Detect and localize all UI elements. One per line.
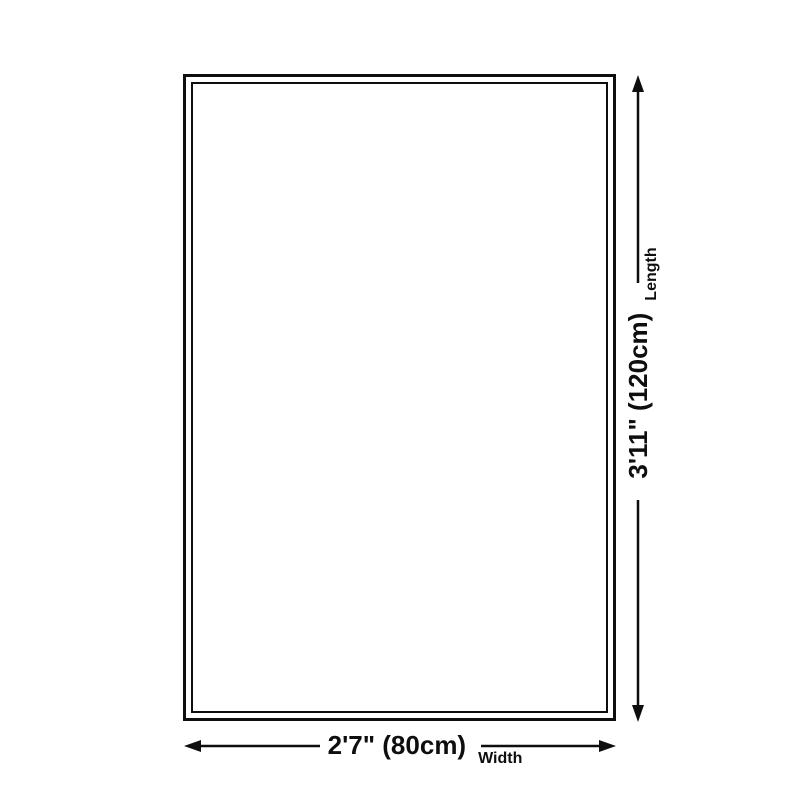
width-value: 2'7" (80cm) xyxy=(328,730,466,760)
length-name: Length xyxy=(644,247,660,300)
width-arrowhead-right-icon xyxy=(599,740,616,752)
product-outline-inner xyxy=(191,82,608,713)
length-arrowhead-top-icon xyxy=(632,75,644,92)
product-size-diagram: 3'11" (120cm)Length 2'7" (80cm)Width xyxy=(0,0,800,800)
length-arrowhead-bottom-icon xyxy=(632,705,644,722)
product-outline xyxy=(183,74,616,721)
width-dimension-label: 2'7" (80cm)Width xyxy=(328,732,523,758)
length-value: 3'11" (120cm) xyxy=(623,313,653,479)
width-arrowhead-left-icon xyxy=(184,740,201,752)
length-dimension-label: 3'11" (120cm)Length xyxy=(625,247,651,478)
width-name: Width xyxy=(478,751,522,767)
